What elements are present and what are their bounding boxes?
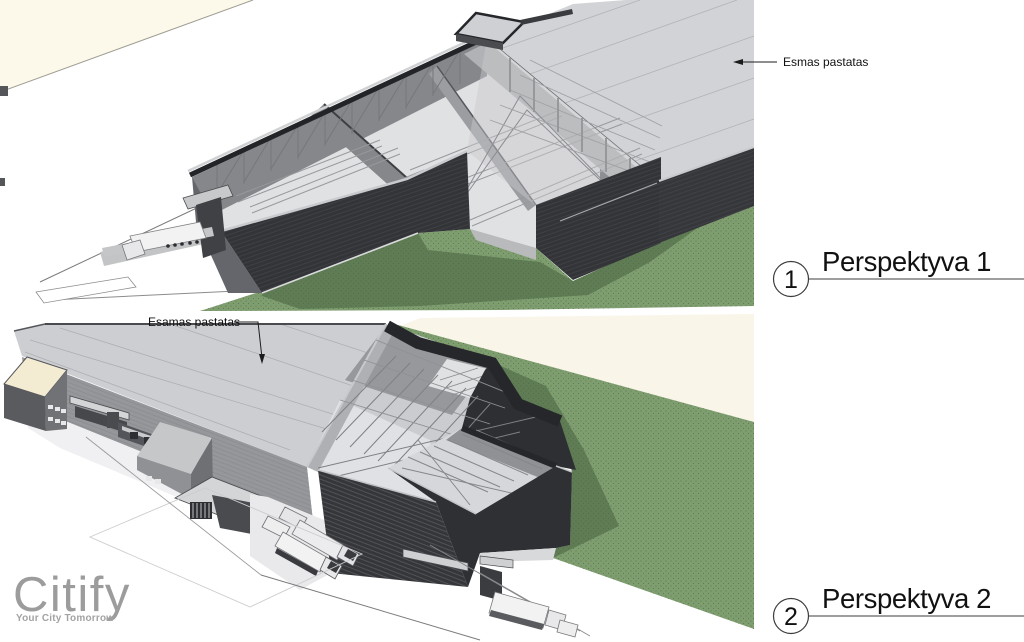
svg-text:Perspektyva 2: Perspektyva 2: [822, 583, 991, 614]
svg-text:Your City Tomorrow: Your City Tomorrow: [16, 613, 114, 624]
svg-text:Esmas pastatas: Esmas pastatas: [783, 55, 868, 69]
svg-text:2: 2: [784, 603, 798, 631]
svg-text:1: 1: [784, 266, 798, 294]
svg-text:Perspektyva 1: Perspektyva 1: [822, 246, 991, 277]
svg-text:Esamas pastatas: Esamas pastatas: [148, 315, 240, 329]
